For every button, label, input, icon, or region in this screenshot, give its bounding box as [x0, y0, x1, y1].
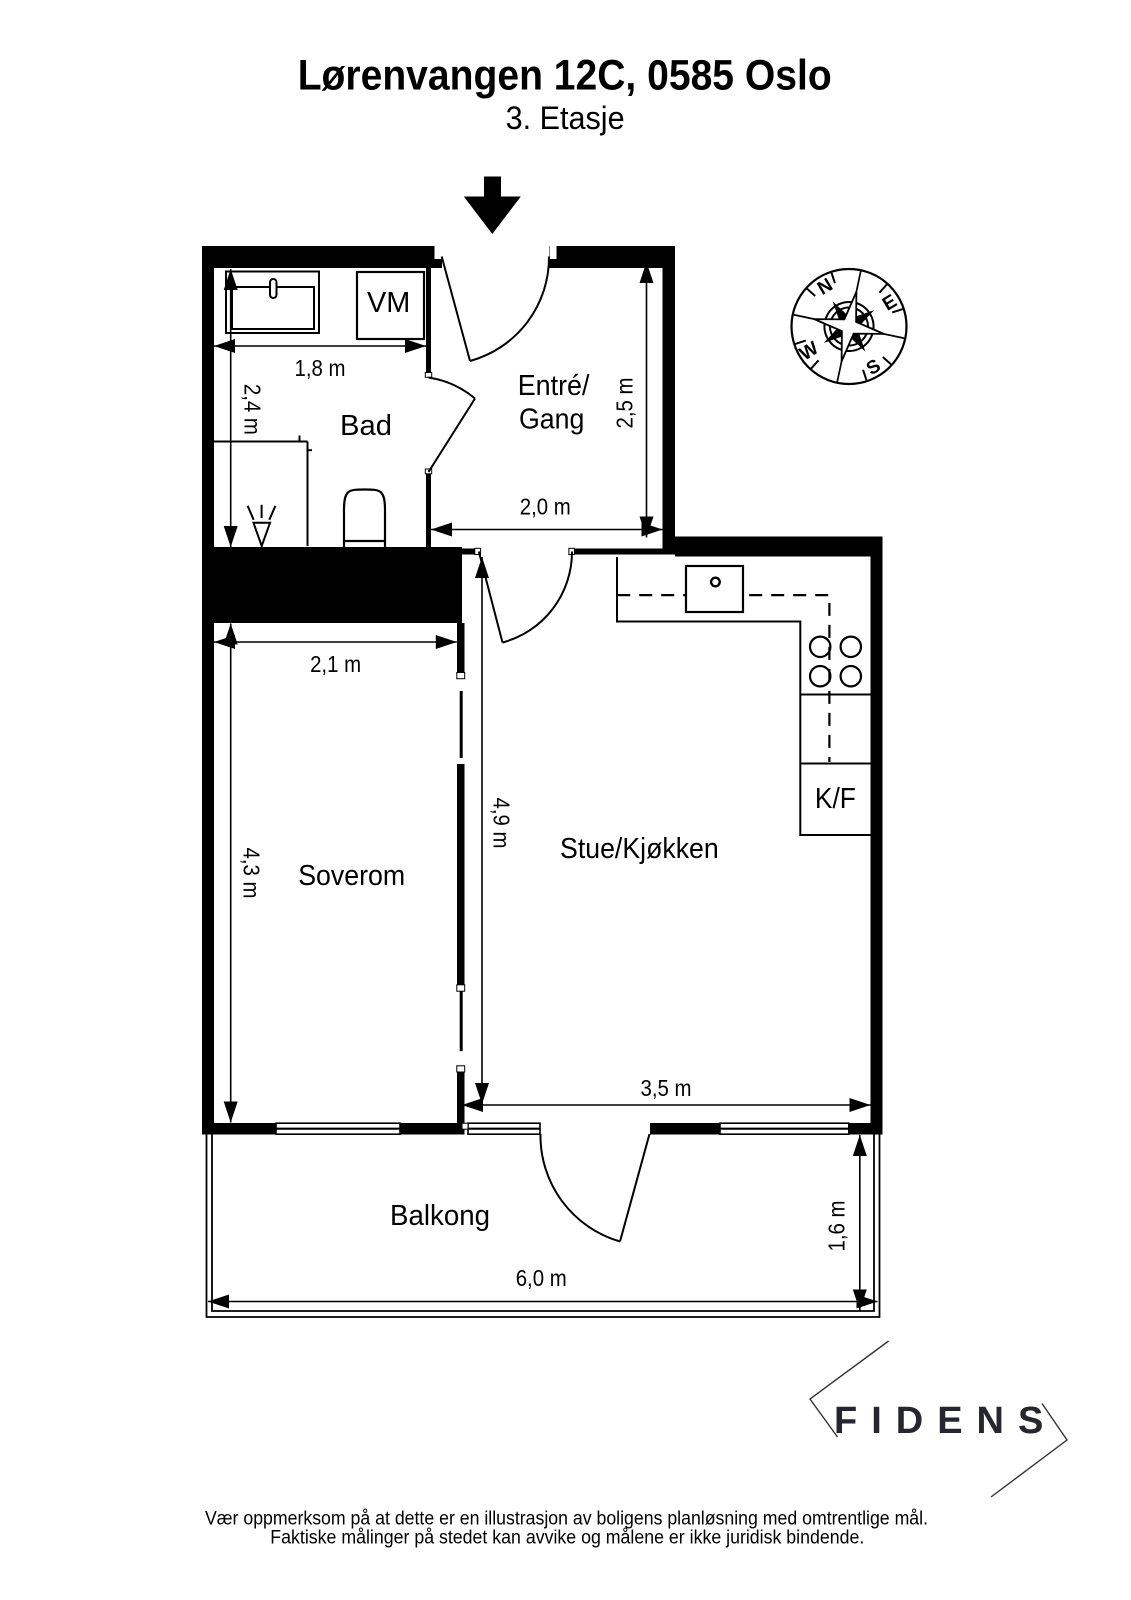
svg-text:Vær oppmerksom på at dette er: Vær oppmerksom på at dette er en illustr…: [205, 1509, 928, 1530]
svg-text:3. Etasje: 3. Etasje: [506, 100, 625, 136]
svg-text:2,0 m: 2,0 m: [520, 494, 571, 520]
svg-text:Balkong: Balkong: [390, 1200, 490, 1232]
svg-text:FIDENS: FIDENS: [834, 1400, 1057, 1442]
svg-text:Soverom: Soverom: [298, 860, 405, 892]
svg-text:Gang: Gang: [519, 404, 584, 436]
svg-text:Bad: Bad: [340, 410, 392, 442]
svg-text:2,5 m: 2,5 m: [612, 378, 638, 429]
svg-text:Entré/: Entré/: [518, 370, 591, 402]
svg-text:Stue/Kjøkken: Stue/Kjøkken: [560, 833, 719, 865]
svg-text:4,9 m: 4,9 m: [489, 798, 515, 849]
svg-text:1,8 m: 1,8 m: [295, 355, 346, 381]
svg-text:3,5 m: 3,5 m: [641, 1075, 692, 1101]
svg-text:VM: VM: [367, 287, 410, 319]
svg-text:K/F: K/F: [815, 783, 856, 815]
svg-text:2,4 m: 2,4 m: [239, 384, 265, 435]
svg-text:Faktiske målinger på stedet ka: Faktiske målinger på stedet kan avvike o…: [270, 1528, 864, 1549]
svg-text:4,3 m: 4,3 m: [239, 848, 265, 899]
svg-text:6,0 m: 6,0 m: [516, 1265, 567, 1291]
svg-text:1,6 m: 1,6 m: [823, 1201, 849, 1252]
svg-text:Lørenvangen 12C, 0585 Oslo: Lørenvangen 12C, 0585 Oslo: [298, 51, 832, 99]
svg-text:2,1 m: 2,1 m: [310, 651, 361, 677]
